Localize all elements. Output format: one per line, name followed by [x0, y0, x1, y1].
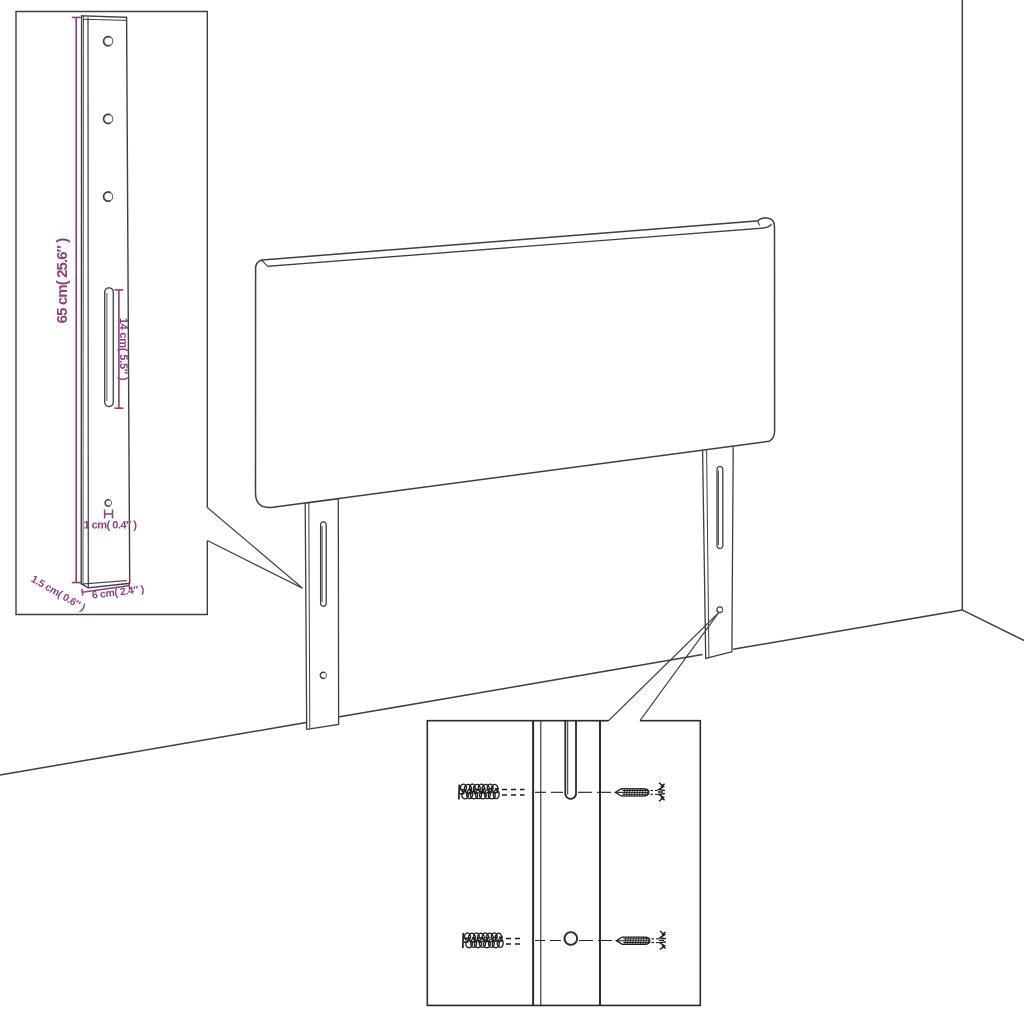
svg-text:14 cm( 5.5″ ): 14 cm( 5.5″ ) — [117, 318, 129, 381]
svg-text:1 cm( 0.4″ ): 1 cm( 0.4″ ) — [83, 520, 137, 532]
svg-text:65 cm( 25.6″ ): 65 cm( 25.6″ ) — [54, 238, 71, 324]
